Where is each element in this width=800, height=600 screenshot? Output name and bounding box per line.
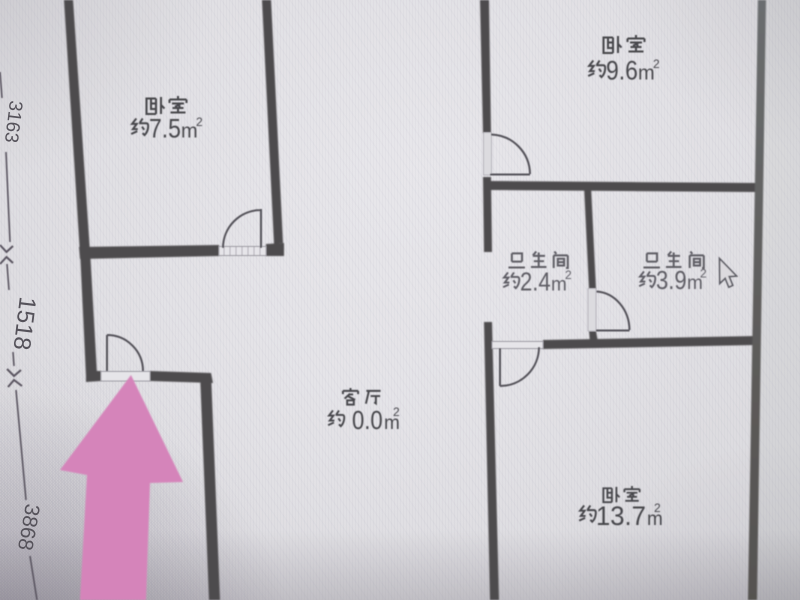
svg-text:3.9: 3.9 (656, 266, 687, 295)
svg-text:2: 2 (565, 268, 572, 282)
svg-text:13.7: 13.7 (596, 500, 646, 531)
svg-text:2.4: 2.4 (520, 268, 551, 297)
svg-text:2: 2 (654, 501, 661, 515)
svg-text:7.5: 7.5 (149, 114, 181, 144)
svg-text:2: 2 (653, 57, 660, 71)
svg-text:2: 2 (700, 267, 707, 281)
svg-text:9.6: 9.6 (606, 56, 638, 86)
svg-text:0.0: 0.0 (352, 406, 383, 435)
svg-text:2: 2 (393, 405, 400, 419)
svg-text:2: 2 (196, 115, 203, 129)
